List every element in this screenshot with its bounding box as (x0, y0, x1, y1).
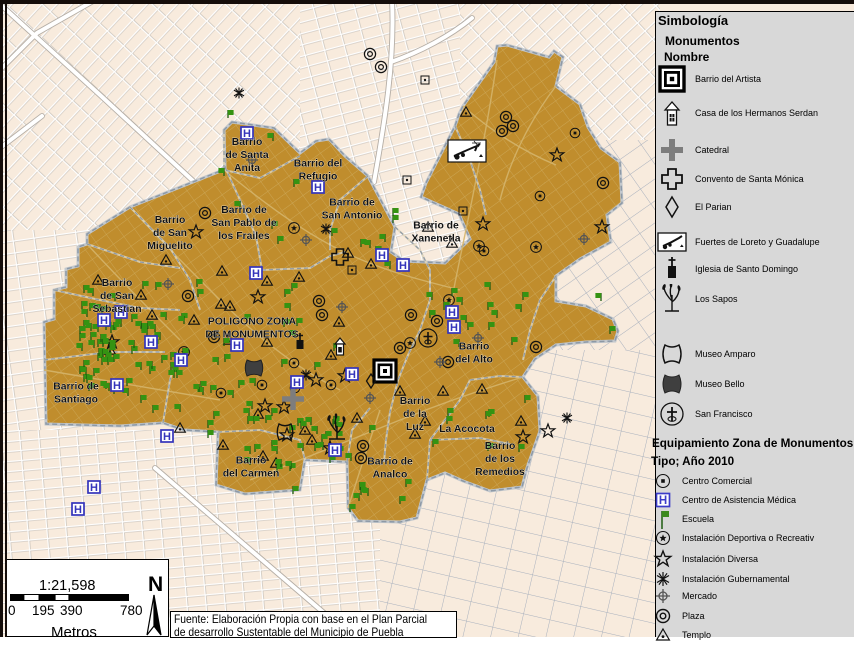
svg-text:de Santa: de Santa (225, 150, 269, 161)
svg-text:Barrio de: Barrio de (367, 457, 413, 468)
svg-text:Barrio: Barrio (232, 137, 263, 148)
svg-text:de los: de los (485, 454, 515, 465)
svg-text:DE MONUMENTOS: DE MONUMENTOS (205, 330, 298, 341)
svg-text:Barrio de: Barrio de (53, 382, 99, 393)
svg-text:Santiago: Santiago (54, 395, 98, 406)
svg-text:Xanenetla: Xanenetla (411, 234, 460, 245)
svg-text:de la: de la (403, 409, 427, 420)
svg-text:Barrio: Barrio (155, 215, 186, 226)
svg-text:Analco: Analco (373, 470, 408, 481)
svg-text:Refugio: Refugio (299, 172, 338, 183)
svg-text:POLIGONO ZONA: POLIGONO ZONA (208, 317, 297, 328)
svg-text:del Carmen: del Carmen (223, 469, 280, 480)
svg-text:La Acocota: La Acocota (439, 424, 495, 435)
svg-text:Miguelito: Miguelito (147, 241, 193, 252)
svg-text:Sebastian: Sebastian (92, 304, 141, 315)
svg-text:Luz: Luz (406, 422, 424, 433)
svg-text:los Frailes: los Frailes (218, 231, 270, 242)
svg-text:Barrio: Barrio (400, 396, 431, 407)
svg-text:Barrio: Barrio (236, 456, 267, 467)
svg-text:Barrio de: Barrio de (329, 198, 375, 209)
svg-text:Barrio: Barrio (459, 342, 490, 353)
svg-text:San Pablo de: San Pablo de (211, 218, 276, 229)
svg-text:San Antonio: San Antonio (322, 211, 383, 222)
svg-text:de San: de San (153, 228, 187, 239)
svg-text:de San: de San (100, 291, 134, 302)
svg-text:Barrio de: Barrio de (413, 221, 459, 232)
svg-text:Remedios: Remedios (475, 467, 525, 478)
svg-text:del Alto: del Alto (455, 355, 493, 366)
svg-text:Barrio: Barrio (485, 441, 516, 452)
svg-text:Anita: Anita (234, 163, 260, 174)
svg-text:Barrio: Barrio (102, 278, 133, 289)
svg-text:Barrio del: Barrio del (294, 159, 343, 170)
svg-text:Barrio de: Barrio de (221, 205, 267, 216)
